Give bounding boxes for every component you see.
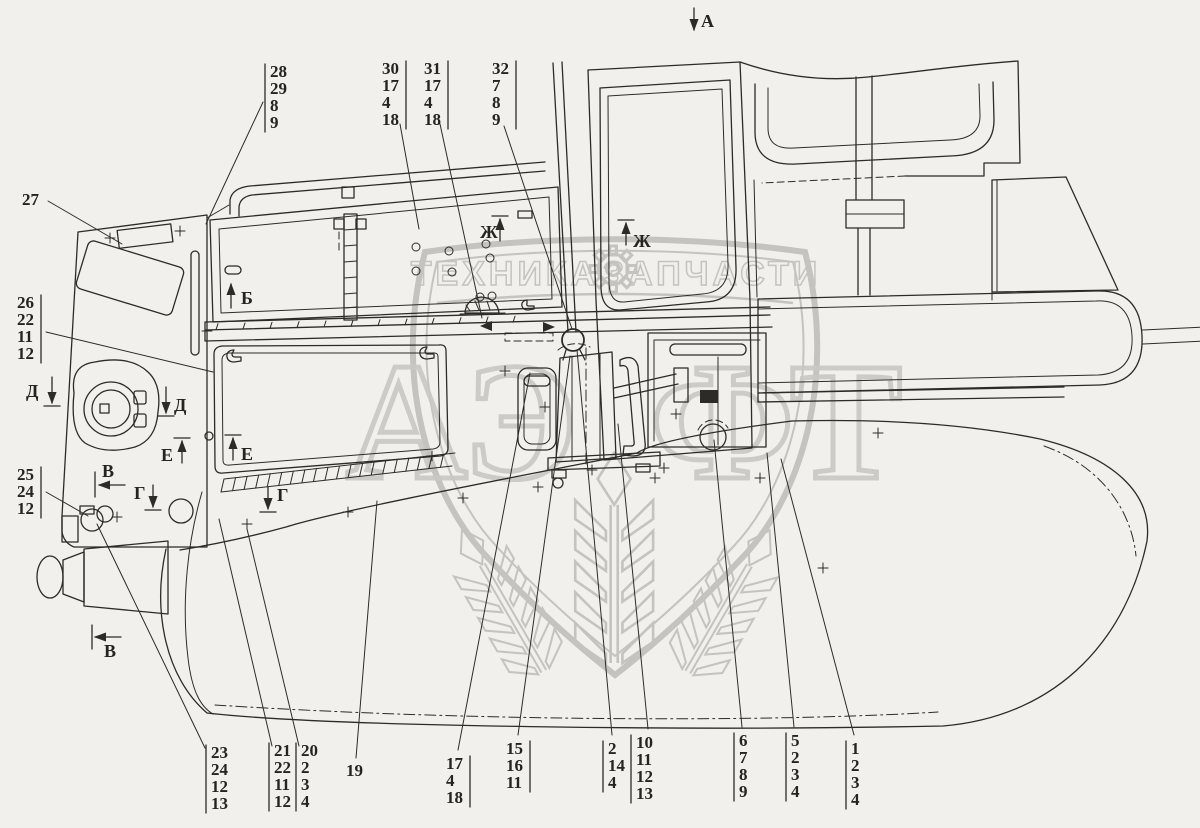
- callout-30-17-4-18: 3017418: [382, 59, 406, 129]
- part-number: 9: [270, 113, 279, 132]
- part-number: 4: [301, 792, 310, 811]
- latch-hook-icon: [227, 350, 241, 362]
- section-letter: Д: [174, 395, 187, 415]
- section-letter: Г: [277, 485, 288, 505]
- view-label-Е: Е: [225, 435, 253, 464]
- view-label-Ж: Ж: [480, 216, 508, 242]
- part-number: 9: [739, 782, 748, 801]
- part-number: 18: [446, 788, 463, 807]
- view-label-Г: Г: [260, 485, 288, 512]
- view-label-Б: Б: [231, 284, 253, 308]
- part-number: 9: [492, 110, 501, 129]
- view-label-В: В: [92, 625, 121, 661]
- part-number: 4: [608, 773, 617, 792]
- view-label-В: В: [95, 461, 125, 497]
- view-label-Д: Д: [158, 387, 187, 416]
- callout-1-2-3-4: 1234: [846, 739, 860, 809]
- view-label-Г: Г: [134, 483, 161, 510]
- section-letter: Ж: [480, 222, 498, 242]
- roof-rail: [207, 162, 545, 218]
- section-letter: Д: [26, 381, 39, 401]
- part-number: 4: [851, 790, 860, 809]
- section-letter: Е: [161, 445, 173, 465]
- section-letter: А: [701, 11, 714, 31]
- part-number: 27: [22, 190, 40, 209]
- headlight: [73, 360, 159, 450]
- part-number: 12: [17, 499, 34, 518]
- part-number: 19: [346, 761, 363, 780]
- view-label-А: А: [694, 8, 714, 31]
- section-letter: Б: [241, 288, 253, 308]
- part-number: 13: [636, 784, 653, 803]
- section-letter: Г: [134, 483, 145, 503]
- callout-32-7-8-9: 32789: [492, 59, 516, 129]
- callout-19: 19: [346, 761, 363, 780]
- view-label-Д: Д: [26, 377, 60, 406]
- callout-27: 27: [22, 190, 40, 209]
- callout-10-11-12-13: 10111213: [631, 733, 653, 803]
- parts-diagram-page: ТЕХНИКА ЗАПЧАСТИ АЭ ФТ: [0, 0, 1200, 828]
- part-number: 4: [791, 782, 800, 801]
- wheat-ear-center: [575, 453, 653, 663]
- callout-28-29-8-9: 282989: [265, 62, 287, 132]
- part-number: 18: [424, 110, 441, 129]
- part-number: 13: [211, 794, 228, 813]
- watermark-big-letters-right: ФТ: [650, 329, 902, 515]
- part-number: 18: [382, 110, 399, 129]
- watermark: ТЕХНИКА ЗАПЧАСТИ АЭ ФТ: [346, 239, 902, 687]
- view-label-Е: Е: [161, 438, 190, 465]
- callout-2-14-4: 2144: [603, 739, 626, 792]
- callout-31-17-4-18: 3117418: [424, 59, 448, 129]
- lift-mast: [518, 62, 585, 360]
- section-letter: Е: [241, 444, 253, 464]
- callout-21-22-11-12: 21221112: [269, 741, 291, 811]
- callout-26-22-11-12: 26221112: [17, 293, 41, 363]
- callout-20-2-3-4: 20234: [296, 741, 318, 811]
- part-number: 11: [506, 773, 522, 792]
- part-number: 12: [17, 344, 34, 363]
- view-label-Ж: Ж: [618, 220, 651, 251]
- hood-latch: [80, 506, 113, 531]
- watermark-text-left: ТЕХНИКА: [411, 255, 599, 293]
- section-letter: В: [102, 461, 114, 481]
- callout-5-2-3-4: 5234: [786, 731, 800, 801]
- exhaust-stack: [846, 76, 904, 295]
- callout-25-24-12: 252412: [17, 465, 41, 518]
- tow-pin: [37, 541, 168, 614]
- section-letter: Ж: [633, 231, 651, 251]
- part-number: 12: [274, 792, 291, 811]
- fuel-tank-panel: [992, 177, 1118, 300]
- section-letter: В: [104, 641, 116, 661]
- callout-6-7-8-9: 6789: [734, 731, 748, 801]
- callout-23-24-12-13: 23241213: [206, 743, 229, 813]
- callout-17-4-18: 17418: [446, 754, 470, 807]
- callout-15-16-11: 151611: [506, 739, 530, 792]
